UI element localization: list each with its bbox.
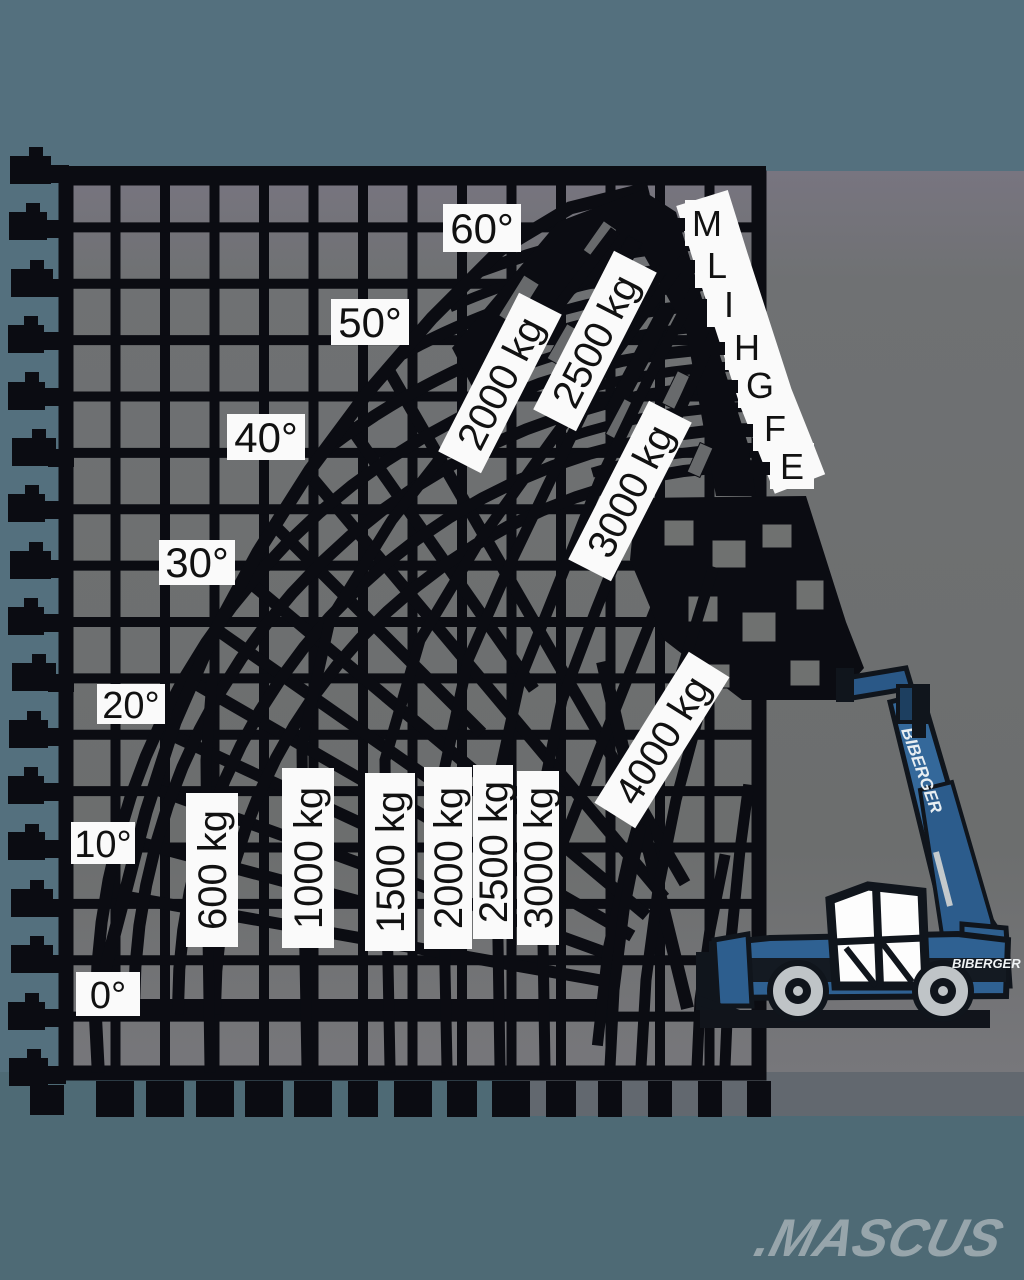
svg-text:0°: 0° — [90, 975, 126, 1017]
svg-text:L: L — [707, 245, 727, 286]
svg-text:20°: 20° — [102, 685, 159, 727]
svg-text:M: M — [692, 203, 722, 244]
svg-text:E: E — [780, 446, 804, 487]
svg-text:H: H — [734, 327, 760, 368]
svg-text:2000 kg: 2000 kg — [427, 787, 471, 929]
svg-text:10°: 10° — [74, 824, 131, 866]
svg-text:2500 kg: 2500 kg — [472, 781, 516, 923]
svg-text:F: F — [764, 408, 786, 449]
svg-text:40°: 40° — [234, 414, 298, 461]
svg-text:3000 kg: 3000 kg — [517, 787, 561, 929]
svg-text:BIBERGER: BIBERGER — [952, 956, 1021, 971]
svg-text:1500 kg: 1500 kg — [369, 791, 413, 933]
svg-text:.MASCUS: .MASCUS — [749, 1209, 1009, 1268]
svg-text:50°: 50° — [338, 299, 402, 346]
svg-text:30°: 30° — [165, 539, 229, 586]
svg-text:1000 kg: 1000 kg — [287, 787, 331, 929]
svg-text:G: G — [746, 365, 774, 406]
svg-text:600 kg: 600 kg — [191, 810, 235, 930]
svg-text:60°: 60° — [450, 205, 514, 252]
svg-text:I: I — [724, 284, 734, 325]
